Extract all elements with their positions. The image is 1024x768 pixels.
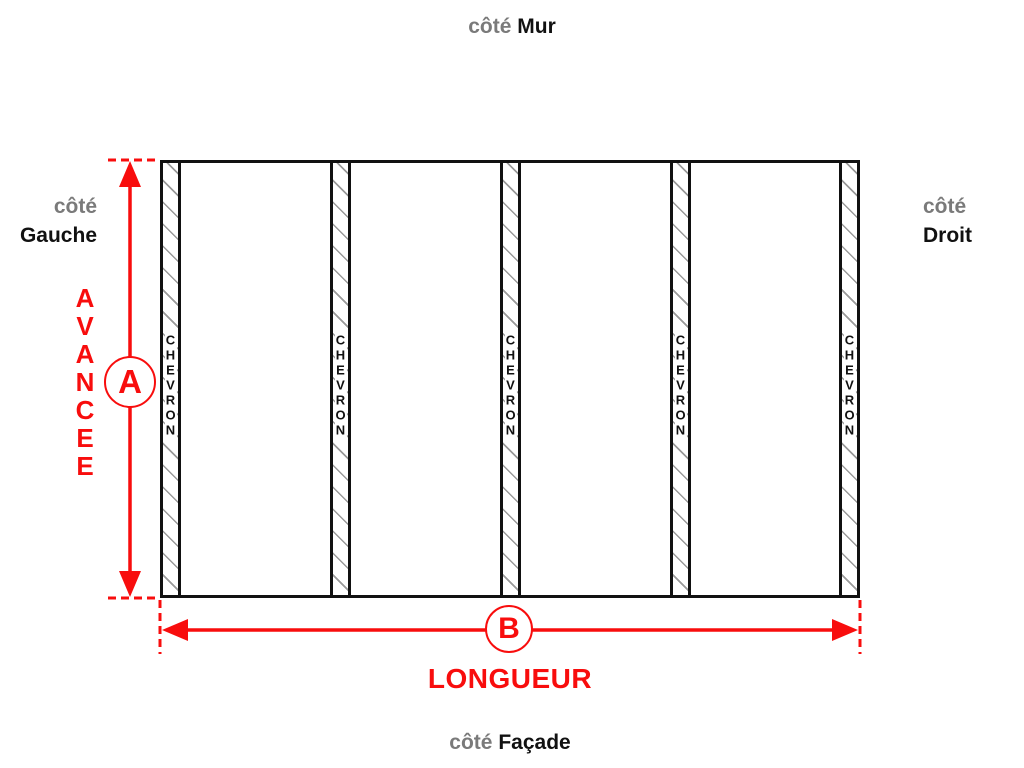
dimension-a-arrowhead-up	[119, 161, 141, 187]
dimension-a-badge: A	[104, 356, 156, 408]
dimension-b-label: LONGUEUR	[160, 663, 860, 695]
dimension-b-letter: B	[498, 612, 520, 646]
dimension-a-label: AVANCEE	[62, 284, 108, 480]
pergola-dimension-diagram: côté Mur côté Gauche côté Droit côté Faç…	[0, 0, 1024, 768]
dimension-a-letter: A	[118, 363, 142, 401]
dimension-b-arrowhead-right	[832, 619, 858, 641]
dimension-a-arrowhead-down	[119, 571, 141, 597]
dimension-b-arrowhead-left	[162, 619, 188, 641]
dimension-b-badge: B	[485, 605, 533, 653]
